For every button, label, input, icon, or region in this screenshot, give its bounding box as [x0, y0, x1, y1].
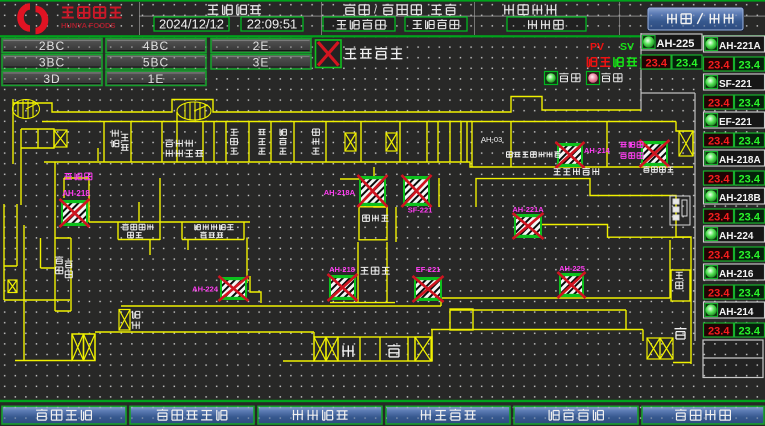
svg-text:23.4: 23.4 [646, 58, 668, 70]
svg-text:AH-03: AH-03 [481, 135, 502, 144]
svg-text:23.4: 23.4 [739, 212, 761, 224]
svg-text:23.4: 23.4 [708, 250, 730, 262]
svg-text:4BC: 4BC [143, 39, 169, 53]
svg-text:AH-224: AH-224 [192, 285, 219, 294]
svg-text:AH-224: AH-224 [719, 231, 754, 242]
svg-text:23.4: 23.4 [708, 60, 730, 72]
svg-text:AH-218: AH-218 [62, 189, 90, 198]
svg-text:SF-221: SF-221 [719, 79, 752, 90]
svg-text:SV: SV [620, 41, 634, 53]
svg-text:AH-218A: AH-218A [324, 188, 356, 197]
svg-text:EF-221: EF-221 [719, 117, 752, 128]
svg-text:2BC: 2BC [39, 39, 65, 53]
svg-text:23.4: 23.4 [739, 326, 761, 338]
svg-text:3D: 3D [43, 72, 60, 86]
svg-text:AH-214: AH-214 [584, 146, 611, 155]
svg-text:SF-221: SF-221 [408, 206, 433, 215]
svg-text:EF-221: EF-221 [416, 265, 441, 274]
svg-text:AH-214: AH-214 [719, 307, 754, 318]
svg-text:AH-221A: AH-221A [512, 205, 544, 214]
svg-text:3E: 3E [253, 55, 270, 69]
svg-text:PV: PV [590, 41, 604, 53]
svg-text:2E: 2E [253, 39, 270, 53]
svg-text:22:09:51: 22:09:51 [247, 17, 298, 32]
svg-text:AH-225: AH-225 [559, 264, 585, 273]
svg-text:23.4: 23.4 [708, 174, 730, 186]
svg-text:AH-225: AH-225 [657, 38, 695, 50]
svg-text:2024/12/12: 2024/12/12 [159, 17, 224, 32]
svg-text:3BC: 3BC [39, 55, 65, 69]
svg-text:1E: 1E [148, 72, 165, 86]
svg-text:23.4: 23.4 [739, 60, 761, 72]
svg-text:23.4: 23.4 [708, 212, 730, 224]
svg-text:AH-216: AH-216 [719, 269, 754, 280]
svg-text:23.4: 23.4 [708, 288, 730, 300]
svg-text:23.4: 23.4 [708, 326, 730, 338]
svg-text:23.4: 23.4 [739, 98, 761, 110]
svg-text:23.4: 23.4 [739, 288, 761, 300]
svg-text:5BC: 5BC [143, 55, 169, 69]
svg-text:23.4: 23.4 [739, 250, 761, 262]
svg-text:AH-218: AH-218 [329, 265, 355, 274]
svg-text:23.4: 23.4 [708, 136, 730, 148]
svg-text:AH-221A: AH-221A [719, 41, 761, 52]
svg-text:23.4: 23.4 [676, 58, 698, 70]
svg-text:23.4: 23.4 [739, 174, 761, 186]
svg-text:23.4: 23.4 [739, 136, 761, 148]
svg-text:HUNYA FOODS: HUNYA FOODS [61, 21, 115, 30]
svg-text:AH-218A: AH-218A [719, 155, 761, 166]
svg-text:23.4: 23.4 [708, 98, 730, 110]
svg-text:AH-218B: AH-218B [719, 193, 761, 204]
